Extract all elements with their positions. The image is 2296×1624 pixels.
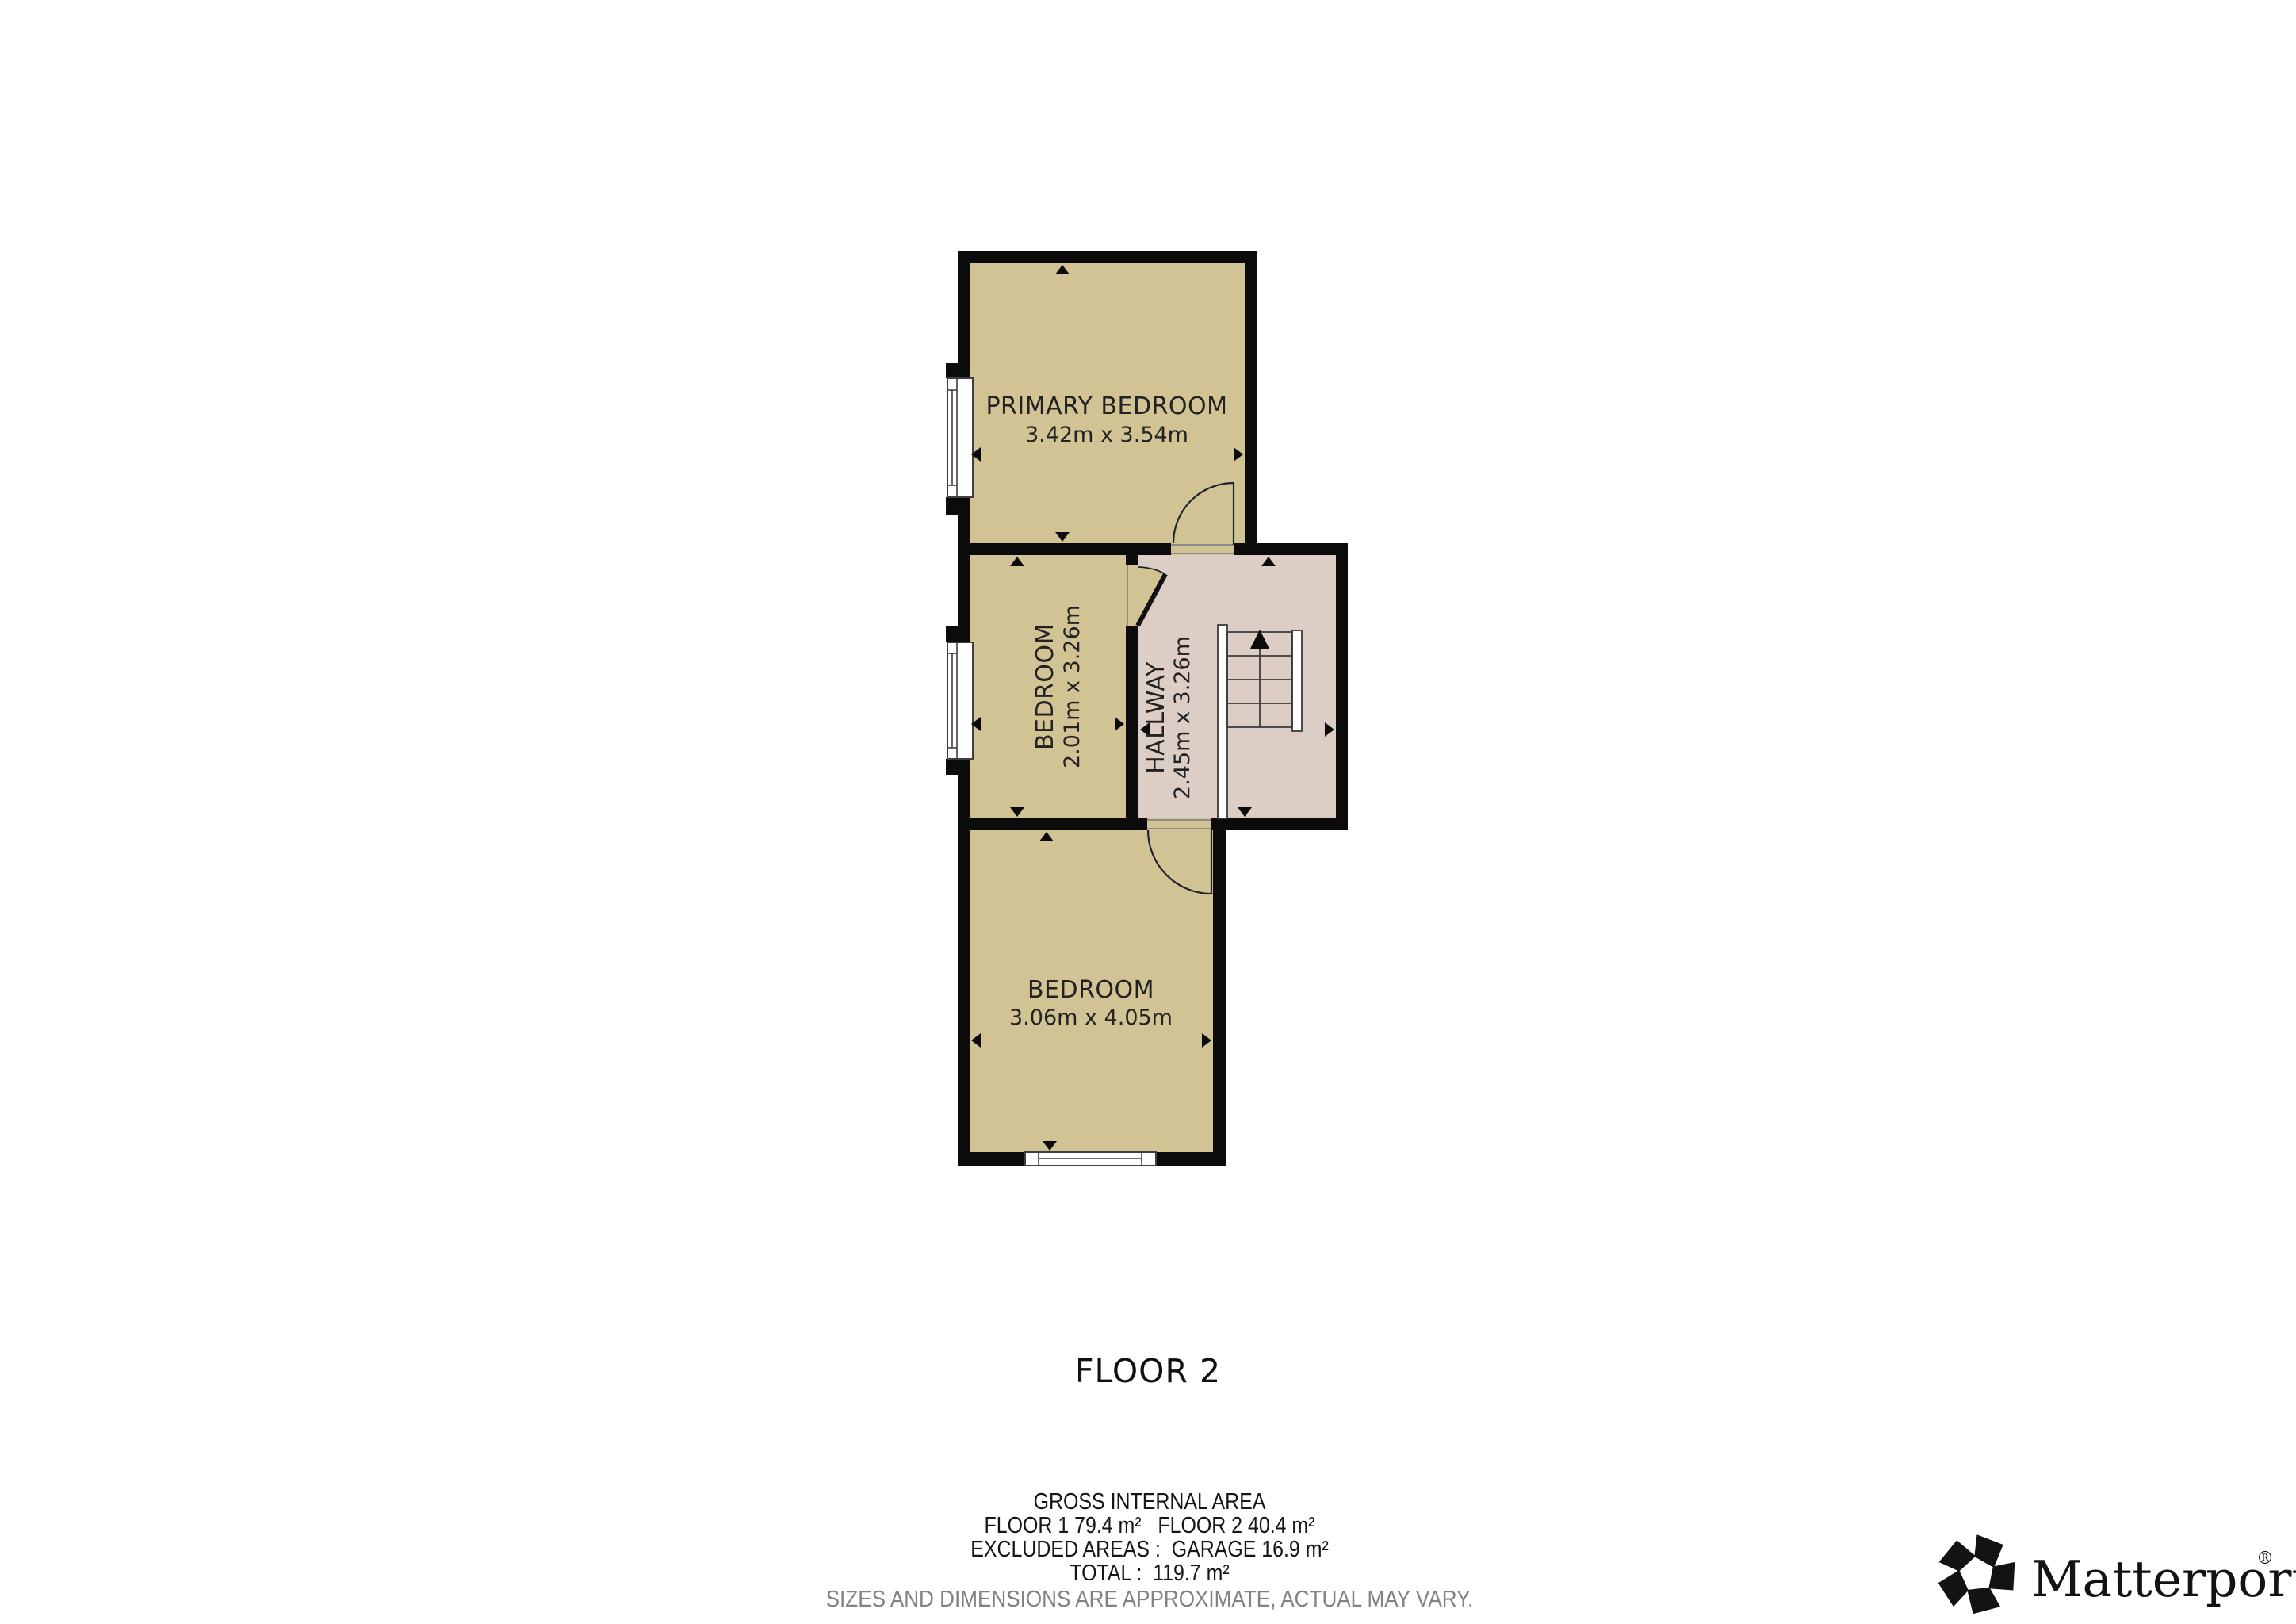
window-frame: [947, 378, 973, 497]
window-frame: [947, 642, 973, 759]
room-hallway-dims: 2.45m x 3.26m: [1170, 636, 1195, 799]
wall-segment: [1213, 830, 1226, 1166]
wall-segment: [1211, 818, 1348, 830]
area-summary-disclaimer: SIZES AND DIMENSIONS ARE APPROXIMATE, AC…: [826, 1586, 1474, 1612]
window-middle-bedroom: [947, 642, 973, 759]
window-reveal-stub: [946, 363, 970, 378]
area-summary-floors: FLOOR 1 79.4 m² FLOOR 2 40.4 m²: [985, 1512, 1315, 1538]
wall-segment: [1126, 626, 1138, 818]
room-bedroom-bottom-dims: 3.06m x 4.05m: [1009, 1005, 1173, 1030]
matterport-logo: Matterport ®: [1932, 1534, 2296, 1622]
wall-segment: [1245, 251, 1257, 555]
room-bedroom-middle-label: BEDROOM: [1031, 623, 1059, 750]
room-bedroom-middle-dims: 2.01m x 3.26m: [1060, 605, 1085, 768]
floor-plan-canvas: PRIMARY BEDROOM 3.42m x 3.54m BEDROOM 2.…: [0, 0, 2296, 1624]
registered-trademark-mark: ®: [2256, 1549, 2274, 1568]
window-bottom-bedroom: [1025, 1152, 1156, 1166]
area-summary: GROSS INTERNAL AREA FLOOR 1 79.4 m² FLOO…: [826, 1488, 1474, 1611]
area-summary-title: GROSS INTERNAL AREA: [1034, 1488, 1266, 1514]
matterport-pinwheel-icon: [1932, 1534, 2022, 1622]
floor-plan-page: PRIMARY BEDROOM 3.42m x 3.54m BEDROOM 2.…: [0, 0, 2296, 1624]
stair-rail-right: [1292, 630, 1302, 731]
wall-segment: [1336, 543, 1348, 830]
floor-title: FLOOR 2: [1075, 1352, 1221, 1390]
wall-segment: [958, 251, 1257, 263]
room-hallway-label: HALLWAY: [1142, 661, 1170, 774]
window-reveal-stub: [946, 759, 970, 775]
room-primary-bedroom-dims: 3.42m x 3.54m: [1025, 423, 1188, 447]
wall-segment: [958, 543, 1171, 555]
window-reveal-stub: [946, 497, 970, 515]
stair-rail-left: [1218, 625, 1227, 818]
wall-segment: [1126, 555, 1138, 565]
wall-segment: [958, 818, 1147, 830]
window-primary-bedroom: [947, 378, 973, 497]
room-bedroom-bottom-label: BEDROOM: [1027, 976, 1154, 1004]
window-reveal-stub: [946, 626, 970, 642]
area-summary-excluded: EXCLUDED AREAS : GARAGE 16.9 m²: [970, 1536, 1329, 1561]
wall-segment: [1234, 543, 1348, 555]
area-summary-total: TOTAL : 119.7 m²: [1070, 1560, 1229, 1585]
room-primary-bedroom-label: PRIMARY BEDROOM: [985, 393, 1227, 420]
